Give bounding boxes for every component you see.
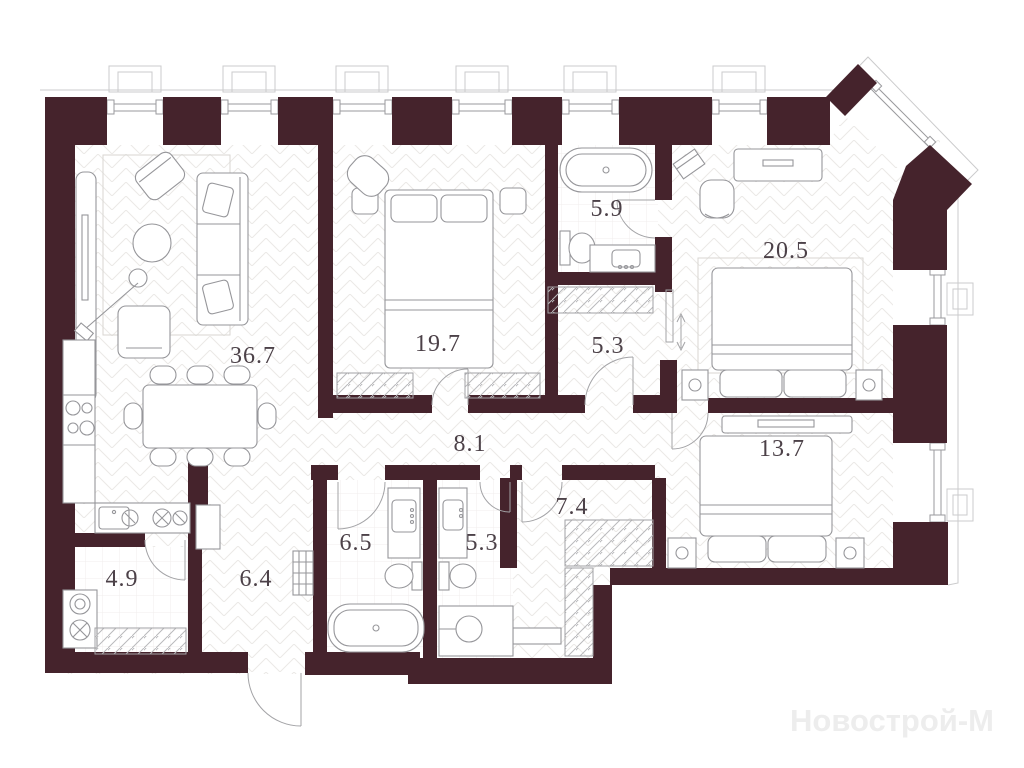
chair <box>150 366 176 384</box>
pillow <box>708 536 766 562</box>
chair <box>187 366 213 384</box>
room-label-hallway: 8.1 <box>454 431 487 457</box>
wardrobe-rack <box>95 628 186 654</box>
bathtub <box>328 604 424 652</box>
room-label-bathroom-ensuite: 5.9 <box>591 196 624 222</box>
room-label-bedroom-1: 19.7 <box>415 331 461 357</box>
pillow <box>441 195 487 222</box>
bench <box>513 628 561 644</box>
sink <box>612 250 640 267</box>
room-label-bathroom-main: 6.5 <box>340 530 373 556</box>
room-label-living-kitchen: 36.7 <box>230 343 276 369</box>
pillow <box>391 195 437 222</box>
console-table <box>196 505 220 549</box>
sofa <box>197 173 248 325</box>
nightstand <box>856 370 882 400</box>
bed <box>712 268 852 370</box>
wardrobe-rack <box>337 373 413 398</box>
tv-icon <box>82 215 88 300</box>
watermark-text: Новострой-М <box>790 703 994 738</box>
floor-plan-page: 36.7 19.7 5.9 20.5 5.3 8.1 13.7 7.4 6.5 … <box>0 0 1024 768</box>
sink <box>392 500 416 532</box>
pillow <box>720 370 782 397</box>
chair <box>258 403 276 429</box>
floor-plan: 36.7 19.7 5.9 20.5 5.3 8.1 13.7 7.4 6.5 … <box>0 0 1024 768</box>
room-label-pantry: 4.9 <box>106 566 139 592</box>
room-label-entry-hall: 6.4 <box>240 566 273 592</box>
desk-chair <box>700 180 734 218</box>
shower <box>439 606 513 656</box>
closet-rack <box>565 568 593 656</box>
tv-icon <box>758 420 814 427</box>
wardrobe-rack <box>565 520 653 566</box>
side-table <box>129 269 147 287</box>
chair <box>150 448 176 466</box>
nightstand <box>668 538 696 568</box>
room-label-corridor: 5.3 <box>592 333 625 359</box>
bathtub <box>560 148 652 192</box>
chair <box>224 448 250 466</box>
chair <box>124 403 142 429</box>
armchair <box>118 306 170 358</box>
room-label-bedroom-2: 13.7 <box>759 436 805 462</box>
window-bracket <box>109 66 765 92</box>
nightstand <box>836 538 864 568</box>
room-label-bedroom-master: 20.5 <box>763 238 809 264</box>
desk <box>734 149 822 181</box>
pillow <box>784 370 846 397</box>
room-label-bathroom-guest: 5.3 <box>466 530 499 556</box>
nightstand <box>500 188 526 214</box>
nightstand <box>682 370 708 400</box>
wardrobe-rack <box>548 287 653 313</box>
coffee-table <box>133 224 171 262</box>
entrance-door <box>248 673 301 726</box>
room-label-dressing: 7.4 <box>556 494 589 520</box>
toilet <box>439 562 449 590</box>
pillow <box>768 536 826 562</box>
chair <box>187 448 213 466</box>
wardrobe-rack <box>465 373 540 398</box>
